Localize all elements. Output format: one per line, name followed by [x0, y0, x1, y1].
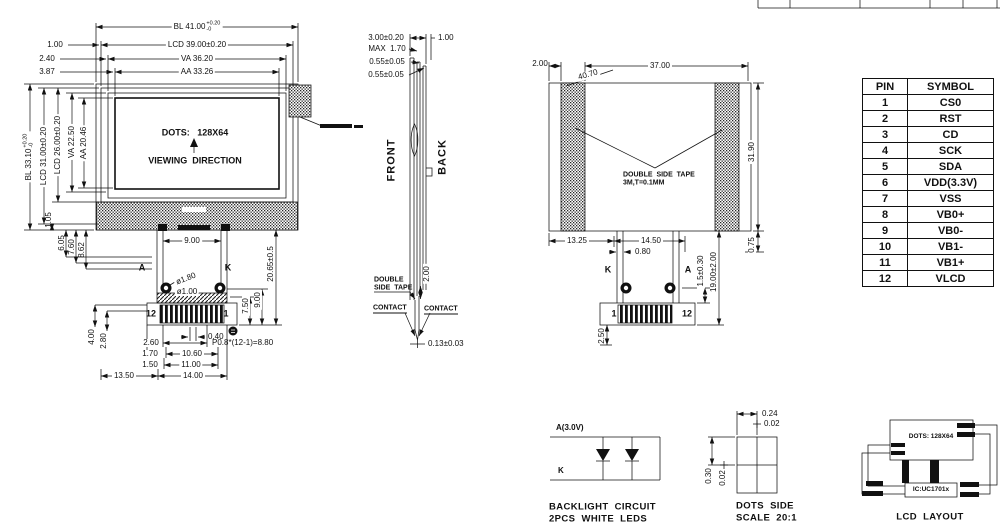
dim-tail-h75: 7.50	[242, 296, 250, 316]
dim-va-height: VA 22.50	[68, 124, 76, 160]
dim-back-080: 0.80	[633, 248, 653, 256]
tape-note-line2: SIDE TAPE	[374, 285, 412, 292]
backlight-caption-line2: 2PCS WHITE LEDS	[549, 514, 647, 524]
table-row: 5SDA	[863, 159, 994, 175]
dim-280: 2.80	[100, 333, 108, 349]
dim-1400: 14.00	[181, 372, 205, 380]
dim-tail-9: 9.00	[182, 237, 202, 245]
dim-hole-dia-100: ø1.00	[175, 288, 199, 296]
dim-8-62: 8.62	[78, 242, 86, 258]
note-smudge	[320, 124, 352, 128]
dim-055a: 0.55±0.05	[369, 58, 405, 66]
dim-6-05: 6.05	[58, 235, 66, 251]
dim-back-3700: 37.00	[648, 62, 672, 70]
contact-left-label: CONTACT	[373, 305, 407, 314]
lcd-module-datasheet-drawing: BL 41.00+0.20-0 LCD 39.00±0.20 VA 36.20 …	[0, 0, 1000, 531]
table-row: 10VB1-	[863, 239, 994, 255]
back-pin1-label: 1	[611, 310, 616, 319]
table-row: 2RST	[863, 111, 994, 127]
pin-label-smudge	[957, 423, 975, 428]
table-row: 11VB1+	[863, 255, 994, 271]
dots-detail-caption-line2: SCALE 20:1	[736, 513, 797, 523]
dim-back-075: 0.75	[748, 235, 756, 255]
dim-back-250: 2.50	[598, 328, 606, 344]
backlight-circuit-schematic	[550, 437, 660, 480]
tape-note-line1: DOUBLE	[374, 277, 404, 284]
led-diode-icon	[596, 437, 610, 480]
pin12-label: 12	[146, 310, 156, 319]
table-row: 1CS0	[863, 95, 994, 111]
table-row: 12VLCD	[863, 271, 994, 287]
dim-thickness: 0.13±0.03	[428, 340, 464, 348]
table-row: 8VB0+	[863, 207, 994, 223]
side-view-linework	[374, 34, 435, 348]
dim-400: 4.00	[88, 329, 96, 345]
back-pin12-label: 12	[682, 310, 692, 319]
pin-label-smudge	[866, 481, 883, 486]
pin-label-smudge	[862, 491, 883, 496]
pin-label-smudge	[891, 443, 905, 447]
lcd-layout-caption: LCD LAYOUT	[896, 512, 963, 522]
drawing-linework	[0, 0, 1000, 531]
back-cathode-label: K	[605, 266, 612, 275]
viewing-direction-text: VIEWING DIRECTION	[148, 157, 242, 166]
dim-055b: 0.55±0.05	[368, 71, 404, 79]
dim-tail-h9: 9.00	[254, 290, 262, 310]
dim-back-1450: 14.50	[639, 237, 663, 245]
dim-pitch: P0.8*(12-1)=8.80	[212, 339, 273, 347]
cathode-label: K	[225, 264, 232, 273]
led-diode-icon	[625, 437, 639, 480]
pin1-label: 1	[223, 310, 228, 319]
dim-300: 3.00±0.20	[368, 34, 404, 42]
front-view-linework	[24, 23, 363, 380]
dim-offset-1: 1.00	[45, 41, 65, 49]
front-side-label: FRONT	[387, 139, 398, 182]
revision-marker-icon	[229, 327, 238, 336]
backlight-anode-label: A(3.0V)	[556, 424, 584, 432]
dim-260: 2.60	[141, 339, 161, 347]
dots-detail-caption-line1: DOTS SIDE	[736, 501, 794, 511]
dim-1100: 11.00	[179, 361, 202, 369]
dim-back-3190: 31.90	[748, 140, 756, 164]
pin-label-smudge	[957, 432, 975, 437]
backlight-caption-line1: BACKLIGHT CIRCUIT	[549, 502, 656, 512]
note-smudge	[354, 125, 363, 128]
table-row: 3CD	[863, 127, 994, 143]
back-view-linework	[549, 62, 764, 345]
dim-aa-width: AA 33.26	[179, 68, 215, 76]
dim-back-1325: 13.25	[565, 237, 589, 245]
dim-100: 1.00	[438, 34, 454, 42]
dim-gap-200: 2.00	[423, 264, 431, 284]
lcd-layout-box-label: DOTS: 128X64	[909, 434, 953, 441]
table-row: 6VDD(3.3V)	[863, 175, 994, 191]
col-symbol: SYMBOL	[908, 79, 994, 95]
back-tape-note-line1: DOUBLE SIDE TAPE	[623, 172, 695, 179]
viewing-direction-arrow-icon	[190, 138, 198, 153]
backlight-cathode-label: K	[558, 467, 564, 475]
contact-right-label: CONTACT	[424, 306, 458, 315]
pin-label-smudge	[960, 492, 979, 497]
pin-label-smudge	[960, 482, 979, 487]
dot-height-dim: 0.30	[705, 468, 713, 484]
dot-width-gap-dim: 0.02	[764, 420, 780, 428]
dim-bl-width: BL 41.00+0.20-0	[172, 22, 223, 33]
dim-1-05: 1.05	[45, 212, 53, 228]
dot-width-dim: 0.24	[762, 410, 778, 418]
anode-label: A	[139, 264, 146, 273]
dim-170: 1.70	[140, 350, 160, 358]
pin-symbol-table: PINSYMBOL 1CS0 2RST 3CD 4SCK 5SDA 6VDD(3…	[862, 78, 994, 287]
dim-lcd-width: LCD 39.00±0.20	[166, 41, 228, 49]
screen-dots-text: DOTS: 128X64	[162, 129, 229, 138]
dim-150: 1.50	[140, 361, 160, 369]
dim-back-1900: 19.00±2.00	[710, 250, 718, 294]
pin-label-smudge	[891, 451, 905, 455]
dim-bl-height: BL 33.10+0.20-0	[24, 132, 35, 183]
dim-back-15: 1.5±0.30	[697, 253, 705, 288]
dim-offset-2: 2.40	[37, 55, 57, 63]
back-side-label: BACK	[438, 139, 449, 175]
dim-back-200: 2.00	[532, 60, 548, 68]
table-row: 4SCK	[863, 143, 994, 159]
dim-va-width: VA 36.20	[179, 55, 215, 63]
dim-lcd26-height: LCD 26.00±0.20	[54, 114, 62, 176]
dim-aa-height: AA 20.46	[80, 125, 88, 161]
dim-2065: 20.65±0.5	[267, 244, 275, 284]
dim-7-60: 7.60	[68, 239, 76, 255]
dim-lcd31-height: LCD 31.00±0.20	[40, 125, 48, 187]
note-smudge	[178, 225, 210, 230]
dim-1350: 13.50	[112, 372, 136, 380]
back-tape-note-line2: 3M,T=0.1MM	[623, 180, 664, 187]
dim-1060: 10.60	[180, 350, 204, 358]
lcd-layout-ic-label: IC:UC1701x	[913, 487, 949, 494]
titleblock-fragment	[758, 0, 1000, 8]
back-anode-label: A	[685, 266, 692, 275]
table-row: 9VB0-	[863, 223, 994, 239]
dim-max170: MAX 1.70	[368, 45, 405, 53]
table-header-row: PINSYMBOL	[863, 79, 994, 95]
col-pin: PIN	[863, 79, 908, 95]
dim-offset-3: 3.87	[37, 68, 57, 76]
dot-height-gap-dim: 0.02	[719, 470, 727, 486]
table-row: 7VSS	[863, 191, 994, 207]
